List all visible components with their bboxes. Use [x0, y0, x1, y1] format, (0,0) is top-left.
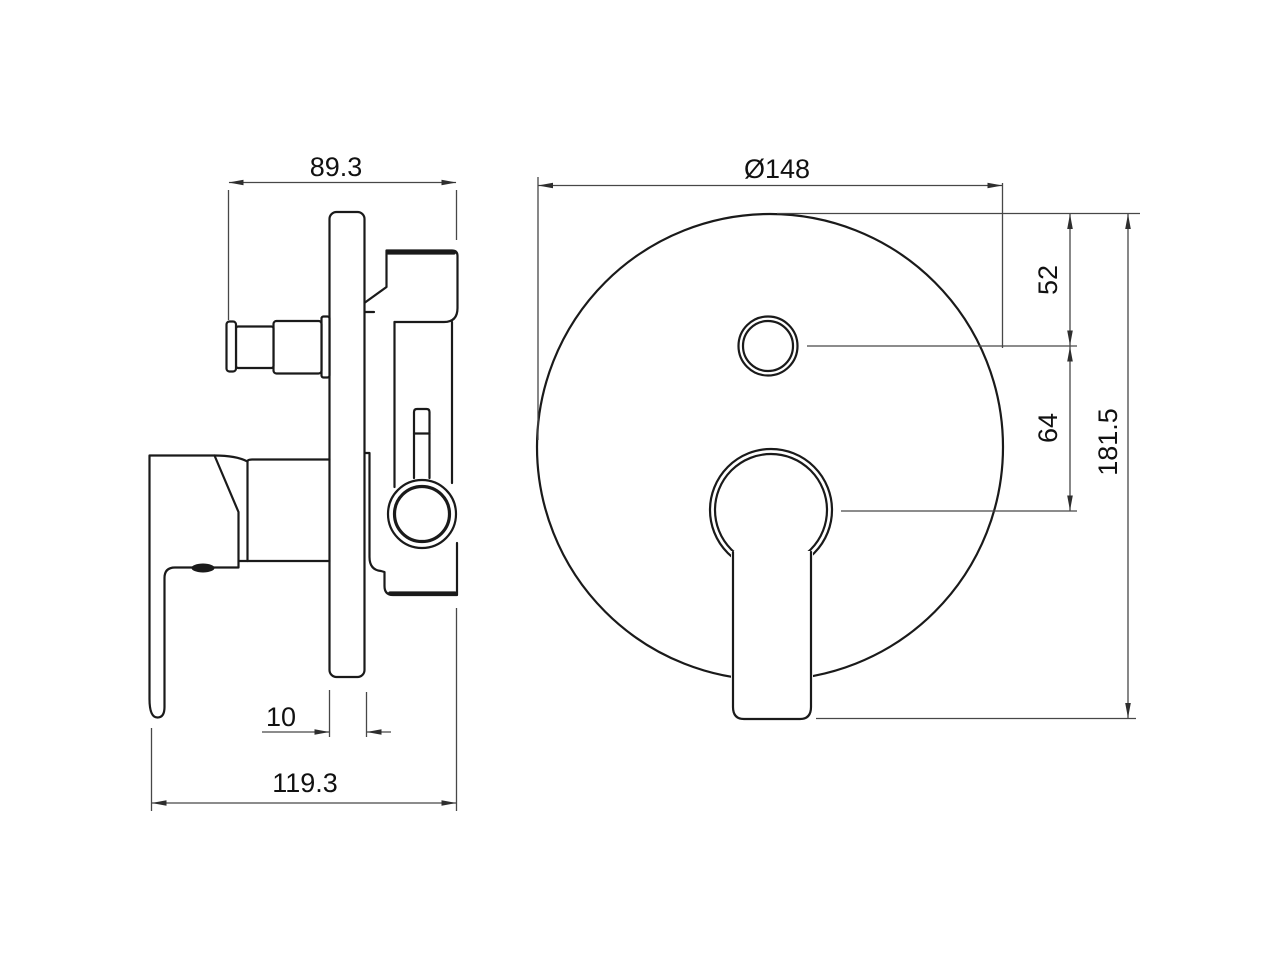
dim-reference-leaders — [777, 214, 1140, 719]
side-diverter-knob — [227, 317, 330, 378]
knob-cap — [227, 322, 237, 372]
lever-boss-top-curve — [215, 456, 248, 462]
dim-front-total-height: 181.5 — [1093, 214, 1131, 719]
knob-flange — [322, 317, 330, 378]
front-lever — [710, 449, 832, 721]
dim-side-total-depth: 119.3 — [152, 608, 457, 811]
lever-boss-top — [248, 460, 330, 462]
dim-front-diameter: Ø148 — [538, 154, 1003, 440]
side-view — [150, 212, 458, 718]
side-supply-elbow — [365, 251, 458, 323]
lever-grip — [150, 456, 239, 718]
dim-plate-thickness: 10 — [262, 690, 391, 737]
dim-label-side-top-width: 89.3 — [310, 152, 363, 182]
dim-label-front-total-height: 181.5 — [1093, 408, 1123, 476]
dim-label-plate-thickness: 10 — [266, 702, 296, 732]
dim-label-diverter-to-lever: 64 — [1033, 413, 1063, 443]
dim-label-side-total-depth: 119.3 — [272, 768, 338, 798]
front-diverter-outer — [739, 317, 798, 376]
dim-top-to-diverter: 52 — [1033, 214, 1073, 512]
front-diverter-inner — [743, 321, 793, 371]
knob-shaft — [236, 327, 274, 369]
side-lever-handle — [150, 456, 330, 718]
dim-label-front-diameter: Ø148 — [744, 154, 810, 184]
side-wall-plate — [330, 212, 365, 677]
dim-label-top-to-diverter: 52 — [1033, 265, 1063, 295]
knob-collar — [274, 321, 322, 374]
front-lever-boss-inner — [715, 454, 827, 566]
lever-set-screw — [192, 564, 215, 573]
front-view — [537, 214, 1003, 721]
side-outlet-port-outer — [388, 480, 456, 548]
side-valve-body — [365, 322, 458, 595]
side-limiter-tab — [414, 409, 430, 478]
dim-diverter-to-lever: 64 — [1033, 347, 1073, 511]
technical-drawing: 89.3 10 119.3 Ø148 — [0, 0, 1280, 960]
drawing-canvas: 89.3 10 119.3 Ø148 — [0, 0, 1280, 960]
